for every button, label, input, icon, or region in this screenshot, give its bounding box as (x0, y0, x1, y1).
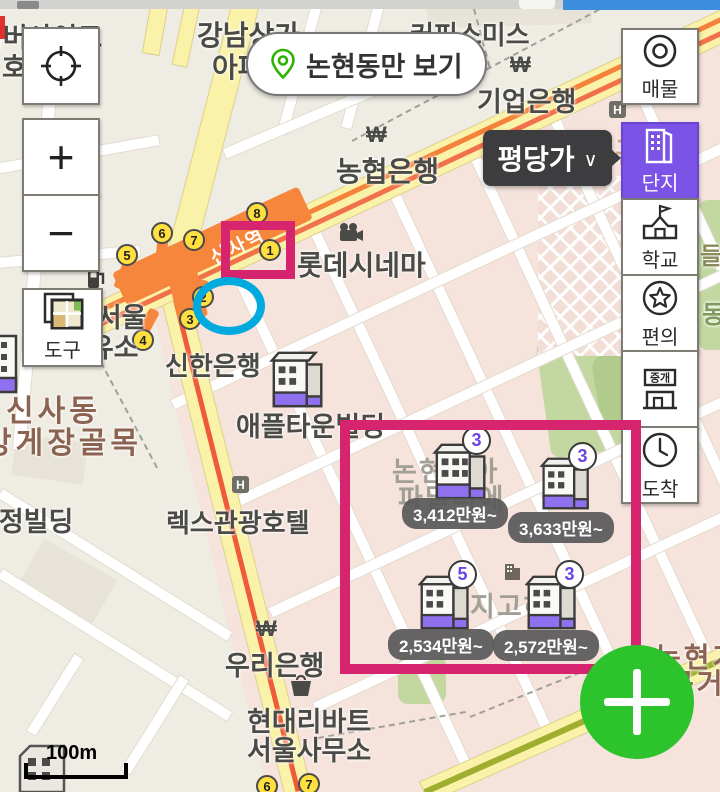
add-fab-button[interactable] (580, 645, 694, 759)
label-shinhan-bank: 신한은행 (165, 346, 261, 383)
region-filter-label: 논현동만 보기 (306, 45, 463, 84)
exit-7b: 7 (298, 773, 320, 792)
exit-6: 6 (151, 222, 173, 244)
top-strip-tab (17, 1, 39, 9)
hotel-marker-icon: H (232, 476, 249, 493)
left-edge-marker (0, 16, 5, 39)
clock-icon (639, 429, 681, 471)
sidebar-item-convenience[interactable]: 편의 (621, 274, 699, 352)
label-seoul-office: 서울사무소 (247, 729, 371, 768)
label-partial-deul: 들 (700, 236, 720, 271)
sidebar-item-complex[interactable]: 단지 (621, 122, 699, 200)
region-filter-pill[interactable]: 논현동만 보기 (246, 32, 487, 96)
sidebar-label: 편의 (642, 321, 679, 350)
svg-text:중개: 중개 (650, 371, 670, 385)
sidebar-item-listings[interactable]: 매물 (621, 28, 699, 105)
label-crab-alley: 방게장골목 (0, 418, 142, 462)
map-screen: { "header": { "region_filter": { "label"… (0, 0, 720, 792)
basket-icon (288, 672, 314, 698)
locate-button[interactable] (22, 27, 100, 105)
dropdown-tail (611, 149, 621, 167)
bank-icon: ₩ (366, 122, 387, 148)
sidebar-item-broker[interactable]: 중개 (621, 350, 699, 428)
tools-button[interactable]: 도구 (22, 288, 103, 367)
zoom-out-button[interactable]: − (22, 194, 100, 272)
annotation-rect-station (221, 221, 295, 279)
star-circle-icon (639, 277, 681, 319)
label-lotte-cinema: 롯데시네마 (297, 244, 426, 284)
label-nh-bank: 농협은행 (336, 150, 439, 190)
price-mode-dropdown[interactable]: 평당가 ∨ (483, 130, 612, 186)
circle-dot-icon (640, 31, 680, 71)
tools-label: 도구 (44, 334, 81, 363)
chevron-down-icon: ∨ (584, 149, 598, 172)
annotation-ellipse (193, 277, 265, 335)
exit-7: 7 (183, 229, 205, 251)
school-icon (639, 202, 681, 242)
building-icon (640, 127, 680, 165)
top-strip-blue (563, 0, 720, 10)
label-ibk-bank: 기업은행 (477, 80, 576, 119)
exit-5: 5 (116, 244, 138, 266)
top-strip-tab-light (519, 0, 555, 9)
location-pin-icon (270, 48, 296, 80)
label-sujeong-bldg: 수정빌딩 (0, 500, 73, 539)
bank-icon: ₩ (256, 616, 277, 642)
building-marker-appletown[interactable] (268, 348, 330, 410)
label-partial-dong: 동 (702, 295, 720, 331)
price-mode-label: 평당가 (497, 138, 574, 178)
sidebar-label: 매물 (642, 73, 679, 102)
sidebar-label: 도착 (642, 473, 679, 502)
scale-label: 100m (46, 742, 97, 765)
plus-icon (633, 669, 641, 735)
sidebar-item-school[interactable]: 학교 (621, 198, 699, 276)
map-layers-icon (41, 292, 85, 332)
top-strip (0, 0, 563, 9)
sidebar-label: 학교 (642, 244, 679, 273)
sidebar-label: 단지 (642, 167, 679, 196)
shop-icon: 중개 (637, 366, 683, 412)
cinema-icon (336, 222, 364, 244)
zoom-in-button[interactable]: + (22, 118, 100, 196)
label-rex-hotel: 렉스관광호텔 (166, 503, 310, 540)
crosshair-icon (39, 44, 83, 88)
bank-icon: ₩ (510, 52, 531, 78)
exit-6b: 6 (256, 775, 278, 792)
annotation-rect-complexes (340, 420, 641, 674)
